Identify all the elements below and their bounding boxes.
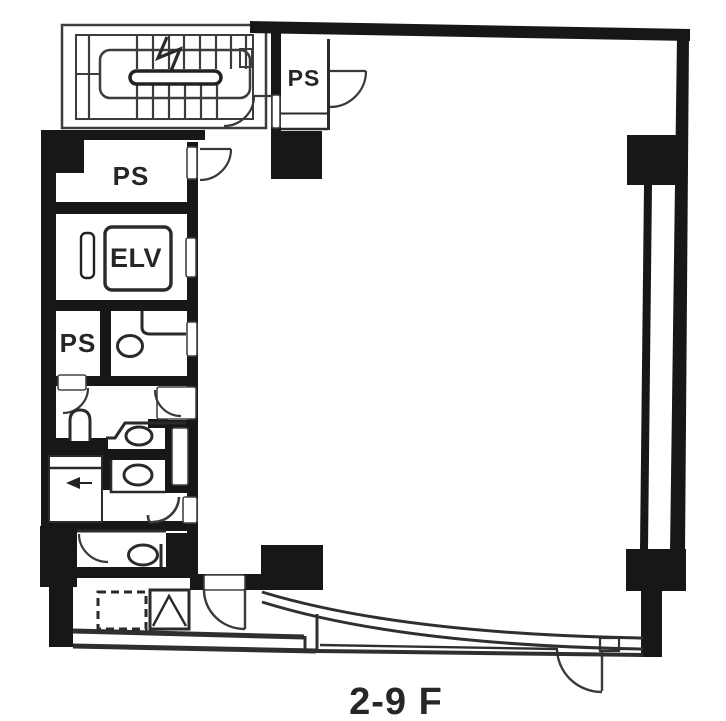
svg-text:ELV: ELV: [110, 243, 162, 273]
svg-text:PS: PS: [60, 328, 97, 358]
svg-text:PS: PS: [113, 161, 150, 191]
svg-text:2-9 F: 2-9 F: [349, 681, 443, 721]
svg-text:PS: PS: [288, 65, 321, 91]
